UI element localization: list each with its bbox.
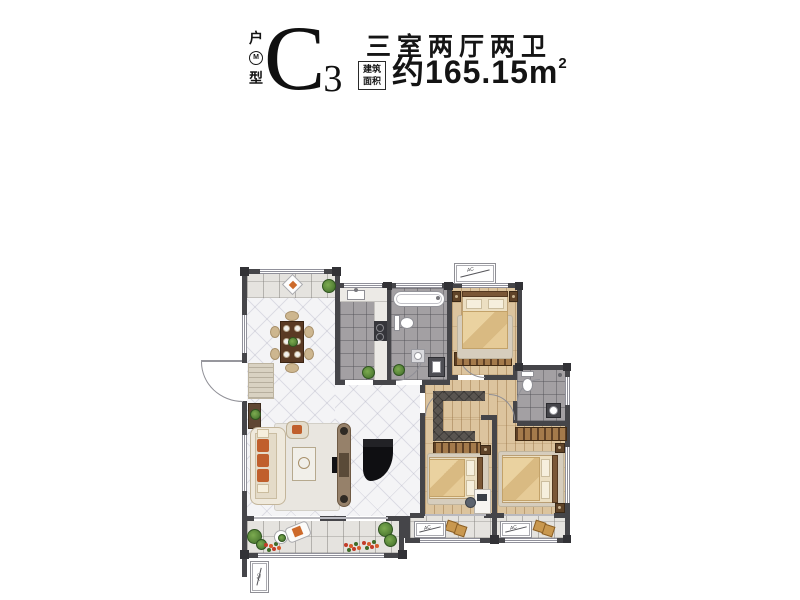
washbasin-bowl xyxy=(414,352,422,360)
plant-icon xyxy=(384,534,397,547)
nightstand-icon xyxy=(555,503,565,513)
nightstand-icon xyxy=(452,291,461,302)
air-conditioner-icon: AC xyxy=(250,561,269,593)
wall-segment xyxy=(387,288,391,380)
wall-pier xyxy=(490,535,499,544)
wall-segment xyxy=(242,516,254,521)
dining-plate xyxy=(283,325,290,332)
stove-burner xyxy=(376,333,384,341)
pillow xyxy=(488,299,504,309)
floorplan-page: { "header": { "unit_label_top": "户", "un… xyxy=(0,0,800,600)
unit-label-char-bottom: 型 xyxy=(248,71,264,85)
wall-segment xyxy=(335,380,345,385)
desk-chair-icon xyxy=(465,497,476,508)
dining-plate xyxy=(283,351,290,358)
entry-mat-icon xyxy=(248,363,274,399)
coffee-table-decor xyxy=(298,457,310,469)
grand-piano-icon xyxy=(363,439,393,447)
wall-segment xyxy=(386,516,404,521)
bed-blanket xyxy=(502,457,540,501)
seal-icon: M xyxy=(249,51,263,65)
window xyxy=(565,377,570,405)
area-row: 建筑 面积 约165.15m2 xyxy=(358,56,568,90)
dining-chair-icon xyxy=(304,326,314,338)
wall-segment xyxy=(452,375,458,380)
unit-code-letter: C xyxy=(264,12,325,104)
plant-icon xyxy=(393,364,405,376)
unit-label-char-top: 户 xyxy=(248,31,264,45)
wall-pier xyxy=(515,282,523,290)
sliding-door-rail xyxy=(504,514,554,516)
dining-chair-icon xyxy=(285,363,299,373)
sliding-door-rail xyxy=(254,517,388,519)
toilet-bowl xyxy=(400,317,414,329)
area-number: 165.15 xyxy=(425,54,529,90)
sofa-cushion xyxy=(257,469,269,482)
sliding-door-rail xyxy=(424,514,486,516)
wall-segment xyxy=(422,380,450,385)
armchair-cushion xyxy=(292,425,302,434)
wall-pier xyxy=(332,267,341,276)
dining-chair-icon xyxy=(270,326,280,338)
wall-segment xyxy=(335,288,340,385)
console-knob xyxy=(340,495,348,503)
wardrobe-icon xyxy=(515,427,567,441)
window xyxy=(420,538,480,543)
wall-pier xyxy=(444,282,453,290)
pillow xyxy=(466,299,482,309)
area-value: 约165.15m2 xyxy=(392,56,568,90)
dining-plate xyxy=(294,325,301,332)
wall-segment xyxy=(420,385,425,393)
pillow xyxy=(541,481,550,499)
unit-code: C 3 xyxy=(264,12,342,104)
ac-label: AC xyxy=(510,524,518,532)
floorplan-canvas: AC AC AC AC xyxy=(228,263,574,585)
shower-drain xyxy=(558,373,562,377)
stove-burner xyxy=(376,324,384,332)
bed-headboard xyxy=(462,291,508,297)
centerpiece-plant-icon xyxy=(288,337,298,347)
wall-pier xyxy=(515,363,523,371)
wall-segment xyxy=(554,513,570,518)
area-unit: m xyxy=(529,54,558,90)
wall-pier xyxy=(398,550,407,559)
dining-chair-icon xyxy=(270,348,280,360)
wall-segment xyxy=(420,413,425,516)
nightstand-icon xyxy=(480,445,491,455)
window xyxy=(396,283,442,288)
dining-chair-icon xyxy=(304,348,314,360)
ac-label: AC xyxy=(424,524,432,532)
plant-icon xyxy=(362,366,375,379)
air-conditioner-icon: AC xyxy=(500,521,532,538)
sofa-cushion xyxy=(257,439,269,452)
pillow xyxy=(466,460,475,476)
air-conditioner-icon: AC xyxy=(454,263,496,284)
sofa-cushion xyxy=(257,454,269,467)
sofa-pillow xyxy=(257,429,269,438)
wall-pier xyxy=(563,363,571,371)
area-label-box: 建筑 面积 xyxy=(358,61,386,90)
tub-faucet xyxy=(436,296,440,300)
console-knob xyxy=(340,427,348,435)
door-swing-icon xyxy=(201,362,243,402)
entry-door-leaf xyxy=(201,360,242,362)
console-panel xyxy=(339,453,349,477)
pillow xyxy=(541,459,550,477)
laptop-icon xyxy=(477,494,487,501)
window xyxy=(258,553,384,558)
wall-segment xyxy=(517,421,570,426)
window xyxy=(565,447,570,503)
walk-in-closet xyxy=(433,431,475,441)
area-label-line1: 建筑 xyxy=(363,64,381,74)
unit-code-number: 3 xyxy=(323,60,342,98)
wall-segment xyxy=(492,418,497,543)
plant-icon xyxy=(278,534,286,542)
dining-chair-icon xyxy=(285,311,299,321)
wall-pier xyxy=(563,535,571,543)
dining-plate xyxy=(294,351,301,358)
flower-bed-icon xyxy=(264,543,268,547)
bed-blanket xyxy=(429,459,465,497)
living-balcony-floor xyxy=(247,521,399,553)
wall-segment xyxy=(404,516,410,538)
washbasin-bowl xyxy=(549,406,558,415)
sink-faucet xyxy=(354,288,358,292)
washer-door xyxy=(432,361,441,373)
flower-bed-icon xyxy=(344,543,348,547)
tv-icon xyxy=(332,457,337,473)
nightstand-icon xyxy=(555,443,565,453)
unit-type-vertical-label: 户 M 型 xyxy=(248,31,264,85)
area-label-line2: 面积 xyxy=(363,76,381,86)
area-unit-superscript: 2 xyxy=(558,55,567,72)
nightstand-icon xyxy=(509,291,518,302)
wall-pier xyxy=(240,550,249,559)
wall-pier xyxy=(240,267,249,276)
flower-bed-icon xyxy=(362,541,366,545)
window xyxy=(242,315,247,353)
bathtub-inner xyxy=(396,294,442,304)
wall-segment xyxy=(373,380,396,385)
sofa-pillow xyxy=(257,484,269,493)
bed-headboard xyxy=(552,455,558,503)
window xyxy=(505,538,557,543)
kitchen-counter xyxy=(374,302,387,380)
area-approx-prefix: 约 xyxy=(392,54,425,90)
air-conditioner-icon: AC xyxy=(414,521,446,538)
window xyxy=(242,435,247,491)
bed-blanket xyxy=(462,311,508,349)
plant-icon xyxy=(322,279,336,293)
toilet-bowl xyxy=(522,378,533,392)
toilet-icon xyxy=(521,371,534,377)
plant-icon xyxy=(250,409,261,420)
desk-icon xyxy=(474,489,491,514)
